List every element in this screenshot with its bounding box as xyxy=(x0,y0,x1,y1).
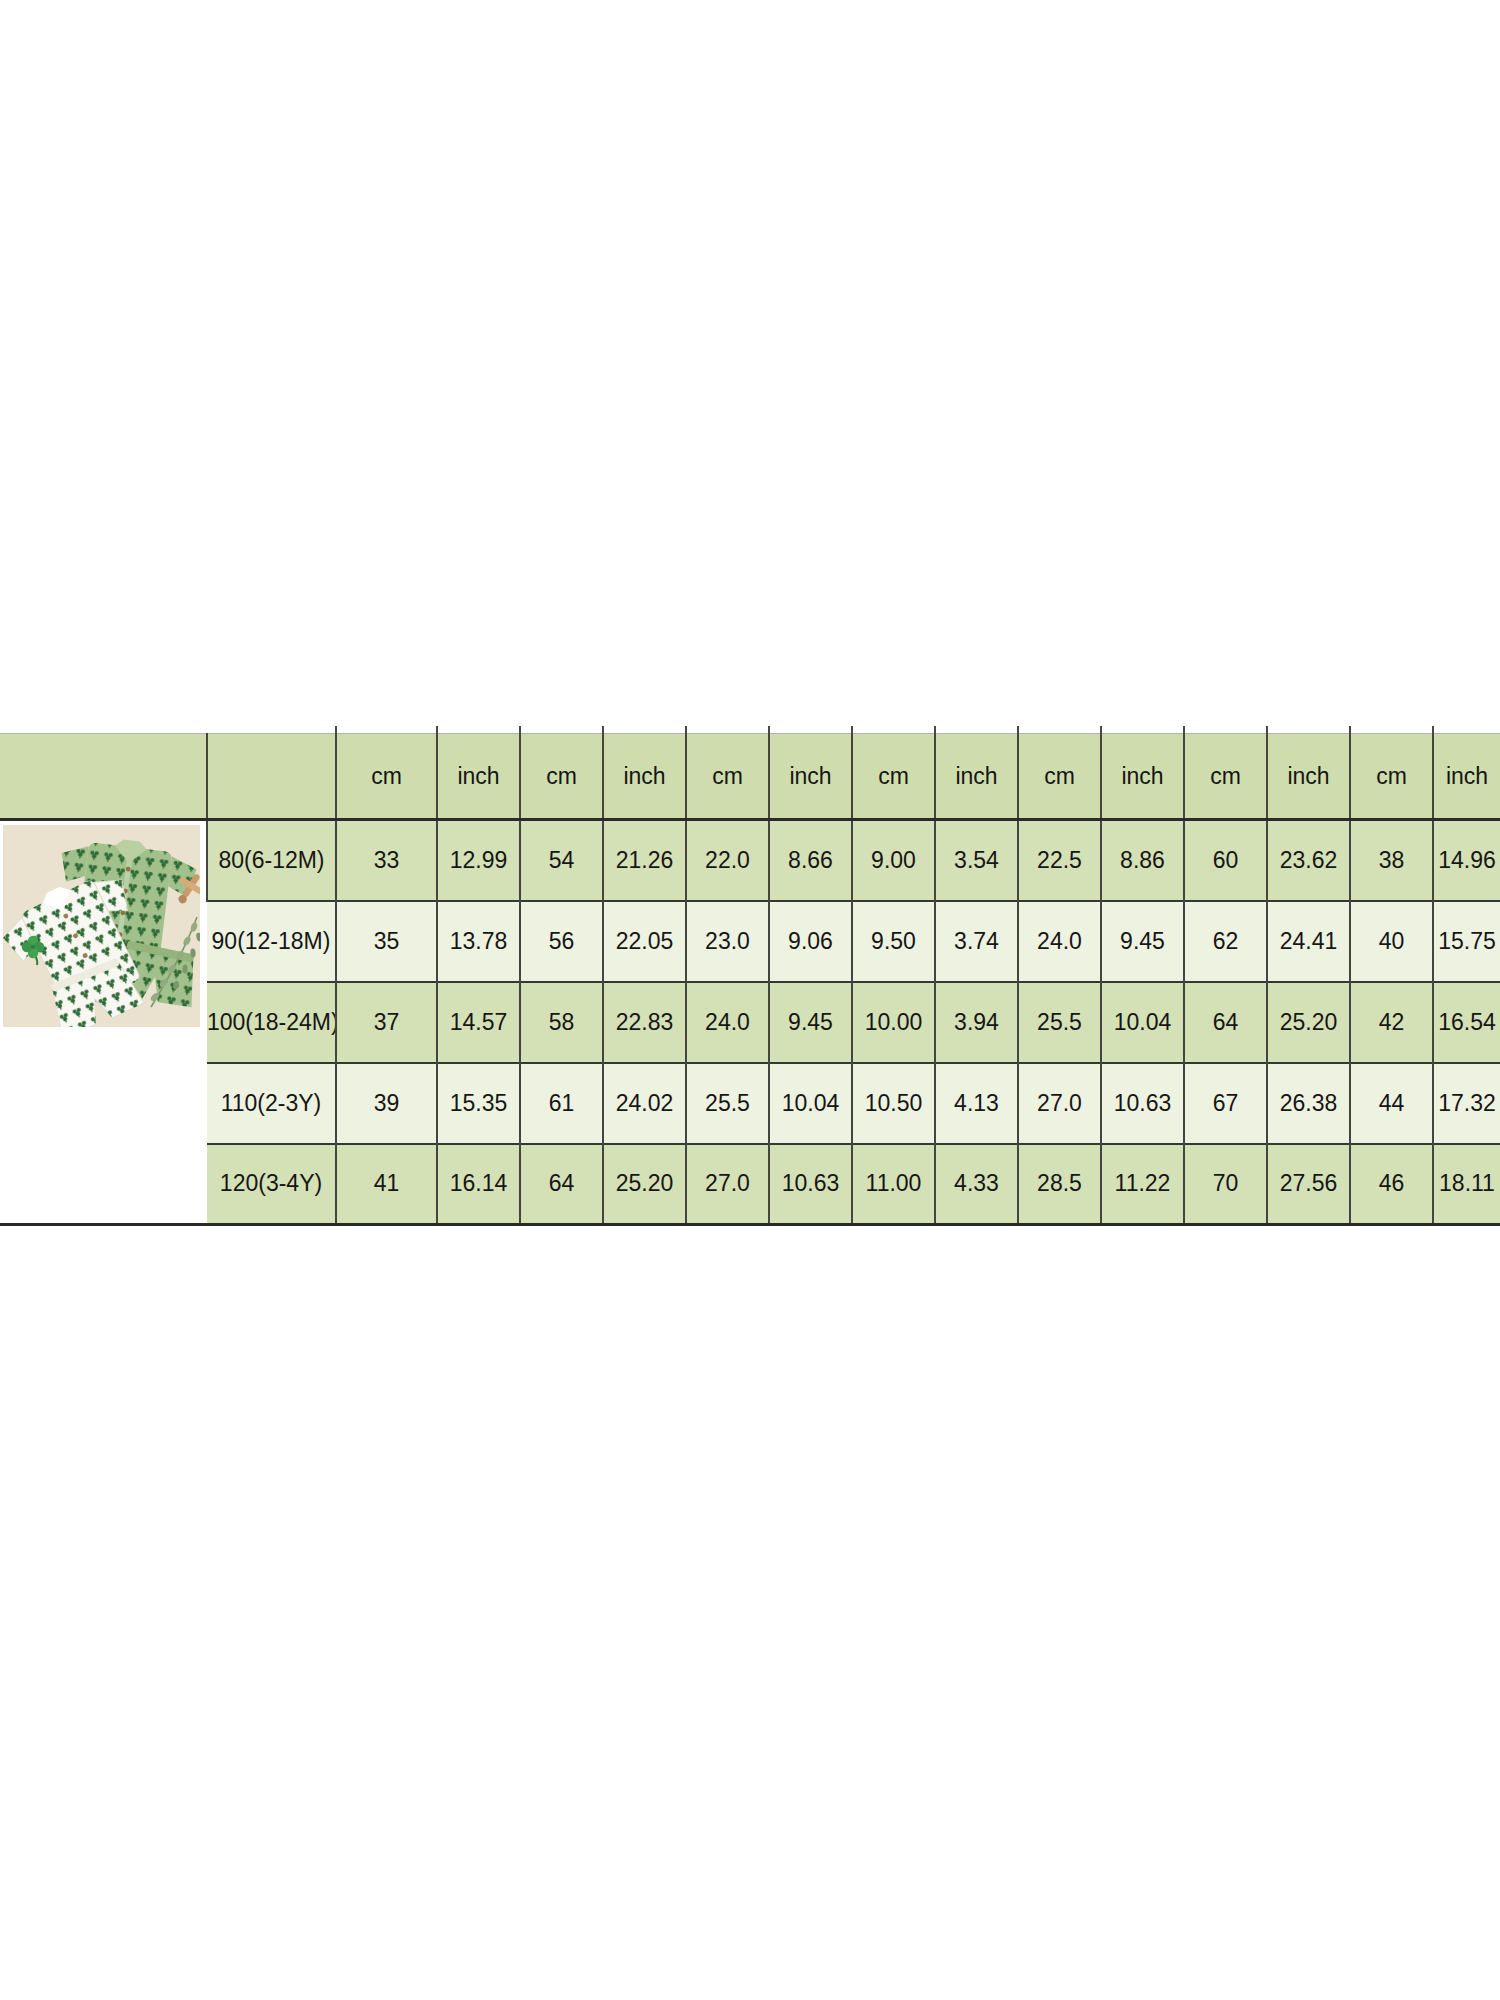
unit-header-inch-1: inch xyxy=(437,734,520,820)
value-cell-cm: 56 xyxy=(520,901,603,982)
cropped-row-tick xyxy=(519,726,521,734)
size-chart-image: cminchcminchcminchcminchcminchcminchcmin… xyxy=(0,0,1500,2000)
value-cell-inch: 11.22 xyxy=(1101,1144,1184,1225)
value-cell-inch: 8.66 xyxy=(769,820,852,901)
value-cell-inch: 10.04 xyxy=(769,1063,852,1144)
value-cell-inch: 15.75 xyxy=(1433,901,1500,982)
cropped-row-tick xyxy=(1017,726,1019,734)
value-cell-inch: 16.14 xyxy=(437,1144,520,1225)
size-label-cell: 100(18-24M) xyxy=(207,982,336,1063)
header-size-cell xyxy=(207,734,336,820)
value-cell-inch: 24.02 xyxy=(603,1063,686,1144)
value-cell-cm: 39 xyxy=(336,1063,437,1144)
size-row-110(2-3Y): 110(2-3Y)3915.356124.0225.510.0410.504.1… xyxy=(0,1063,1500,1144)
size-label-cell: 80(6-12M) xyxy=(207,820,336,901)
value-cell-cm: 23.0 xyxy=(686,901,769,982)
value-cell-inch: 9.45 xyxy=(769,982,852,1063)
size-chart-table: cminchcminchcminchcminchcminchcminchcmin… xyxy=(0,733,1500,1226)
value-cell-inch: 23.62 xyxy=(1267,820,1350,901)
value-cell-inch: 10.04 xyxy=(1101,982,1184,1063)
value-cell-cm: 24.0 xyxy=(686,982,769,1063)
size-row-120(3-4Y): 120(3-4Y)4116.146425.2027.010.6311.004.3… xyxy=(0,1144,1500,1225)
value-cell-cm: 67 xyxy=(1184,1063,1267,1144)
product-photo xyxy=(3,825,200,1027)
value-cell-cm: 38 xyxy=(1350,820,1433,901)
value-cell-inch: 18.11 xyxy=(1433,1144,1500,1225)
value-cell-cm: 42 xyxy=(1350,982,1433,1063)
value-cell-cm: 10.50 xyxy=(852,1063,935,1144)
unit-header-cm-10: cm xyxy=(1184,734,1267,820)
cropped-row-tick xyxy=(602,726,604,734)
cropped-row-tick xyxy=(1266,726,1268,734)
value-cell-inch: 27.56 xyxy=(1267,1144,1350,1225)
value-cell-cm: 64 xyxy=(1184,982,1267,1063)
cropped-row-tick xyxy=(685,726,687,734)
value-cell-cm: 61 xyxy=(520,1063,603,1144)
value-cell-inch: 12.99 xyxy=(437,820,520,901)
value-cell-cm: 54 xyxy=(520,820,603,901)
value-cell-cm: 60 xyxy=(1184,820,1267,901)
value-cell-inch: 3.94 xyxy=(935,982,1018,1063)
cropped-row-tick xyxy=(1183,726,1185,734)
cropped-row-tick xyxy=(934,726,936,734)
unit-header-cm-4: cm xyxy=(686,734,769,820)
value-cell-inch: 25.20 xyxy=(603,1144,686,1225)
unit-header-cm-8: cm xyxy=(1018,734,1101,820)
value-cell-inch: 17.32 xyxy=(1433,1063,1500,1144)
value-cell-cm: 64 xyxy=(520,1144,603,1225)
cropped-row-tick xyxy=(436,726,438,734)
value-cell-cm: 28.5 xyxy=(1018,1144,1101,1225)
cropped-row-tick xyxy=(1432,726,1434,734)
value-cell-inch: 4.13 xyxy=(935,1063,1018,1144)
size-row-80(6-12M): 80(6-12M)3312.995421.2622.08.669.003.542… xyxy=(0,820,1500,901)
value-cell-cm: 24.0 xyxy=(1018,901,1101,982)
value-cell-inch: 25.20 xyxy=(1267,982,1350,1063)
unit-header-inch-5: inch xyxy=(769,734,852,820)
value-cell-cm: 25.5 xyxy=(686,1063,769,1144)
value-cell-cm: 22.5 xyxy=(1018,820,1101,901)
unit-header-inch-7: inch xyxy=(935,734,1018,820)
cropped-row-tick xyxy=(768,726,770,734)
value-cell-inch: 3.54 xyxy=(935,820,1018,901)
value-cell-cm: 27.0 xyxy=(1018,1063,1101,1144)
value-cell-inch: 10.63 xyxy=(1101,1063,1184,1144)
value-cell-cm: 37 xyxy=(336,982,437,1063)
unit-header-cm-12: cm xyxy=(1350,734,1433,820)
size-label-cell: 90(12-18M) xyxy=(207,901,336,982)
value-cell-inch: 24.41 xyxy=(1267,901,1350,982)
size-label-cell: 120(3-4Y) xyxy=(207,1144,336,1225)
value-cell-inch: 9.45 xyxy=(1101,901,1184,982)
value-cell-cm: 25.5 xyxy=(1018,982,1101,1063)
cropped-row-tick xyxy=(1100,726,1102,734)
unit-header-cm-0: cm xyxy=(336,734,437,820)
value-cell-cm: 22.0 xyxy=(686,820,769,901)
value-cell-cm: 44 xyxy=(1350,1063,1433,1144)
value-cell-inch: 16.54 xyxy=(1433,982,1500,1063)
cropped-row-tick xyxy=(851,726,853,734)
value-cell-inch: 4.33 xyxy=(935,1144,1018,1225)
unit-header-inch-9: inch xyxy=(1101,734,1184,820)
value-cell-cm: 40 xyxy=(1350,901,1433,982)
value-cell-cm: 41 xyxy=(336,1144,437,1225)
value-cell-inch: 9.06 xyxy=(769,901,852,982)
unit-header-inch-13: inch xyxy=(1433,734,1500,820)
value-cell-inch: 15.35 xyxy=(437,1063,520,1144)
value-cell-inch: 14.96 xyxy=(1433,820,1500,901)
value-cell-inch: 3.74 xyxy=(935,901,1018,982)
unit-header-cm-6: cm xyxy=(852,734,935,820)
value-cell-cm: 9.00 xyxy=(852,820,935,901)
value-cell-inch: 10.63 xyxy=(769,1144,852,1225)
value-cell-cm: 11.00 xyxy=(852,1144,935,1225)
value-cell-cm: 58 xyxy=(520,982,603,1063)
value-cell-cm: 10.00 xyxy=(852,982,935,1063)
value-cell-cm: 33 xyxy=(336,820,437,901)
value-cell-inch: 21.26 xyxy=(603,820,686,901)
unit-header-inch-11: inch xyxy=(1267,734,1350,820)
value-cell-inch: 8.86 xyxy=(1101,820,1184,901)
header-photo-cell xyxy=(0,734,207,820)
value-cell-inch: 14.57 xyxy=(437,982,520,1063)
value-cell-cm: 70 xyxy=(1184,1144,1267,1225)
size-row-100(18-24M): 100(18-24M)3714.575822.8324.09.4510.003.… xyxy=(0,982,1500,1063)
value-cell-inch: 26.38 xyxy=(1267,1063,1350,1144)
size-label-cell: 110(2-3Y) xyxy=(207,1063,336,1144)
value-cell-cm: 9.50 xyxy=(852,901,935,982)
unit-header-cm-2: cm xyxy=(520,734,603,820)
value-cell-cm: 46 xyxy=(1350,1144,1433,1225)
cropped-row-tick xyxy=(1349,726,1351,734)
value-cell-cm: 35 xyxy=(336,901,437,982)
size-row-90(12-18M): 90(12-18M)3513.785622.0523.09.069.503.74… xyxy=(0,901,1500,982)
cropped-row-tick xyxy=(335,726,337,734)
unit-header-row: cminchcminchcminchcminchcminchcminchcmin… xyxy=(0,734,1500,820)
value-cell-inch: 13.78 xyxy=(437,901,520,982)
unit-header-inch-3: inch xyxy=(603,734,686,820)
value-cell-inch: 22.05 xyxy=(603,901,686,982)
value-cell-cm: 62 xyxy=(1184,901,1267,982)
value-cell-cm: 27.0 xyxy=(686,1144,769,1225)
value-cell-inch: 22.83 xyxy=(603,982,686,1063)
